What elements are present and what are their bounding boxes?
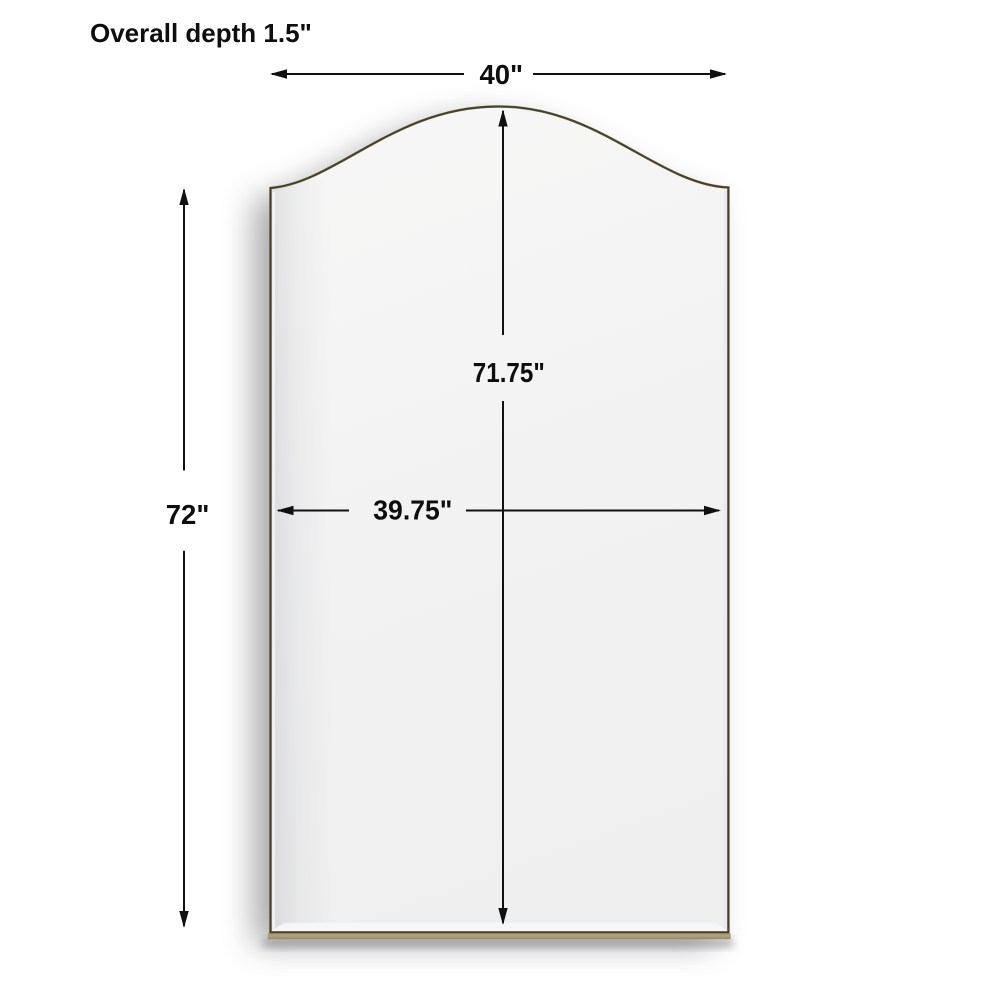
svg-text:72": 72" — [166, 499, 210, 530]
svg-text:71.75": 71.75" — [473, 357, 545, 388]
svg-text:39.75": 39.75" — [373, 495, 452, 526]
svg-text:Overall depth 1.5": Overall depth 1.5" — [90, 18, 312, 48]
svg-text:40": 40" — [479, 59, 523, 90]
